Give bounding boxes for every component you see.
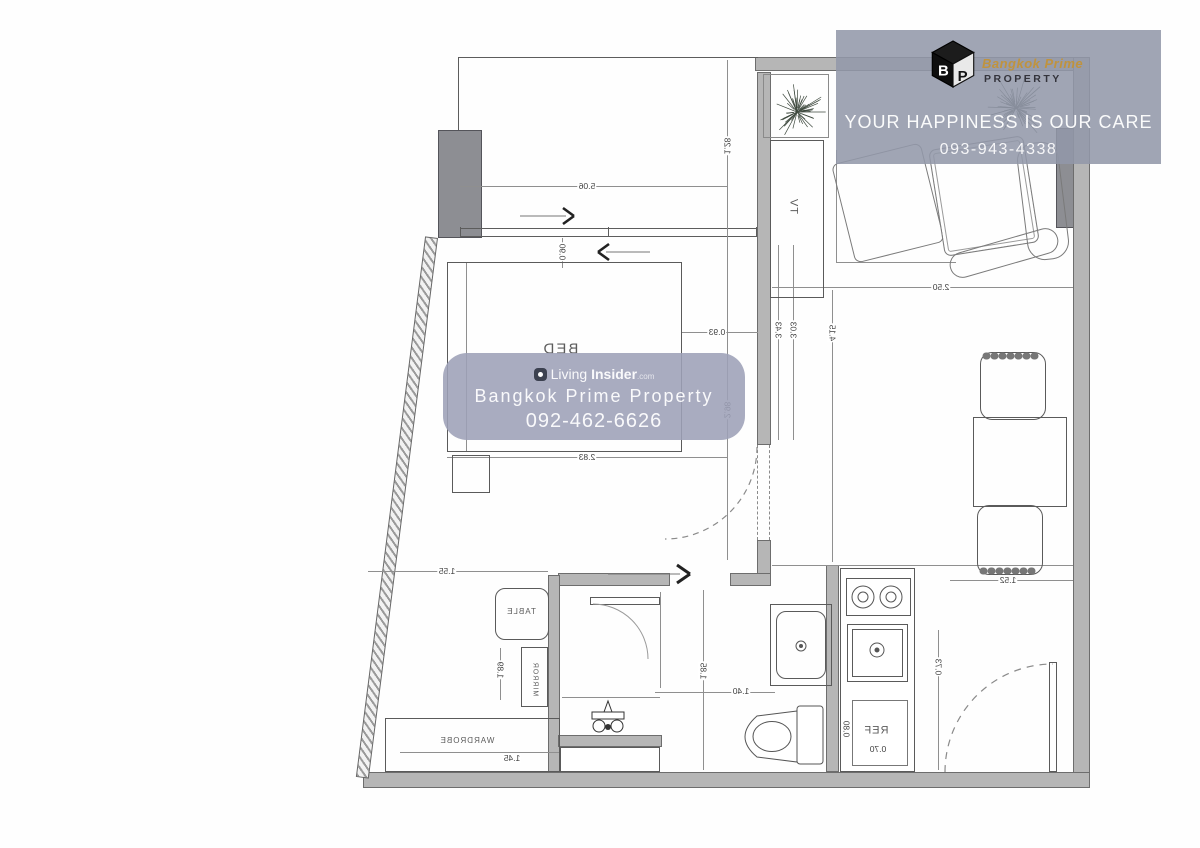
agency-phone: 093-943-4338 <box>836 141 1161 159</box>
shower-wall <box>558 735 662 747</box>
toilet-icon <box>745 706 823 764</box>
svg-text:P: P <box>958 68 968 85</box>
agency-brand-word: PROPERTY <box>984 73 1062 85</box>
bp-cube-logo-icon: B P <box>930 38 976 90</box>
listing-agency-phone: 092-462-6626 <box>443 410 745 433</box>
living-insider-logo-icon <box>534 368 547 381</box>
svg-text:B: B <box>938 63 949 80</box>
shower-tray-line <box>562 697 660 698</box>
tv-label: TV <box>788 198 799 214</box>
listing-watermark: Living Insider.com Bangkok Prime Propert… <box>443 353 745 440</box>
wall-bathroom-top-left <box>558 573 670 586</box>
dimension-label: 0.70 <box>869 745 888 754</box>
bedroom-door-arc <box>665 447 757 539</box>
entry-door-leaf <box>1049 662 1057 772</box>
dimension-label: 1.45 <box>503 754 522 763</box>
wall-bottom <box>363 772 1090 788</box>
ref-label: REF <box>864 726 889 737</box>
dimension-label: 0.90 <box>558 243 567 262</box>
entry-door-arc <box>945 664 1053 772</box>
bedroom-door-dash <box>757 445 758 540</box>
dimension-label: 2.83 <box>578 453 597 462</box>
dimension-label: 5.06 <box>578 182 597 191</box>
dining-table <box>973 417 1067 507</box>
floor-plan-page: BED TV REF TABLE MIRROR WARDROBE 5.06 1.… <box>0 0 1200 848</box>
wardrobe <box>385 718 560 772</box>
shower-wall-line <box>660 592 661 688</box>
living-insider-brand: Living Insider.com <box>443 366 745 382</box>
plant-recess <box>763 74 829 138</box>
dim-line <box>938 630 939 770</box>
bathroom-door-arc <box>593 604 648 659</box>
balcony-left-line <box>458 57 459 133</box>
faucet-icon <box>592 701 624 732</box>
dimension-label: 1.40 <box>732 687 751 696</box>
kitchen-sink-basin <box>852 629 903 677</box>
wall-corridor-lower <box>757 540 771 575</box>
wardrobe-label: WARDROBE <box>440 737 495 745</box>
dimension-label: 2.50 <box>932 283 951 292</box>
agency-tagline: YOUR HAPPINESS IS OUR CARE <box>836 112 1161 133</box>
window-tick <box>608 227 609 237</box>
dimension-label: 1.55 <box>438 567 457 576</box>
nightstand <box>452 455 490 493</box>
vanity-basin <box>776 611 826 679</box>
bedroom-door-dash <box>769 445 770 540</box>
dim-line <box>655 692 775 693</box>
brand-bold: Insider <box>591 366 637 382</box>
dimension-label: 1.89 <box>496 661 505 680</box>
dim-line <box>368 571 548 572</box>
window-tick <box>460 227 461 237</box>
agency-brand-name: Bangkok Prime <box>982 56 1083 71</box>
wall-right <box>1073 57 1090 788</box>
sofa-edge <box>836 262 956 263</box>
agency-watermark: B P Bangkok Prime PROPERTY YOUR HAPPINES… <box>836 30 1161 164</box>
dim-line <box>727 60 728 560</box>
wall-top-left-line <box>458 57 758 58</box>
dimension-label: 1.28 <box>723 137 732 156</box>
wall-left-diagonal <box>356 236 438 778</box>
brand-tld: .com <box>637 372 654 381</box>
dimension-label: 1.52 <box>999 576 1018 585</box>
dimension-label: 0.80 <box>842 720 851 739</box>
bathroom-door-leaf <box>590 597 660 605</box>
stove <box>846 578 911 616</box>
table-label: TABLE <box>506 608 536 616</box>
bathtub <box>560 747 660 772</box>
mirror-label: MIRROR <box>532 662 539 696</box>
dimension-label: 1.85 <box>699 662 708 681</box>
column-top-left <box>438 130 482 238</box>
dining-chair <box>980 352 1046 420</box>
listing-agency-name: Bangkok Prime Property <box>443 386 745 407</box>
tv-cabinet <box>770 140 824 298</box>
dimension-label: 4.15 <box>828 324 837 343</box>
dimension-label: 0.93 <box>708 328 727 337</box>
window-tick <box>756 227 757 237</box>
dimension-label: 0.73 <box>934 658 943 677</box>
dimension-label: 3.43 <box>774 321 783 340</box>
dimension-label: 3.03 <box>789 321 798 340</box>
brand-regular: Living <box>551 366 588 382</box>
dining-chair <box>977 505 1043 575</box>
wall-bathroom-top-right <box>730 573 771 586</box>
